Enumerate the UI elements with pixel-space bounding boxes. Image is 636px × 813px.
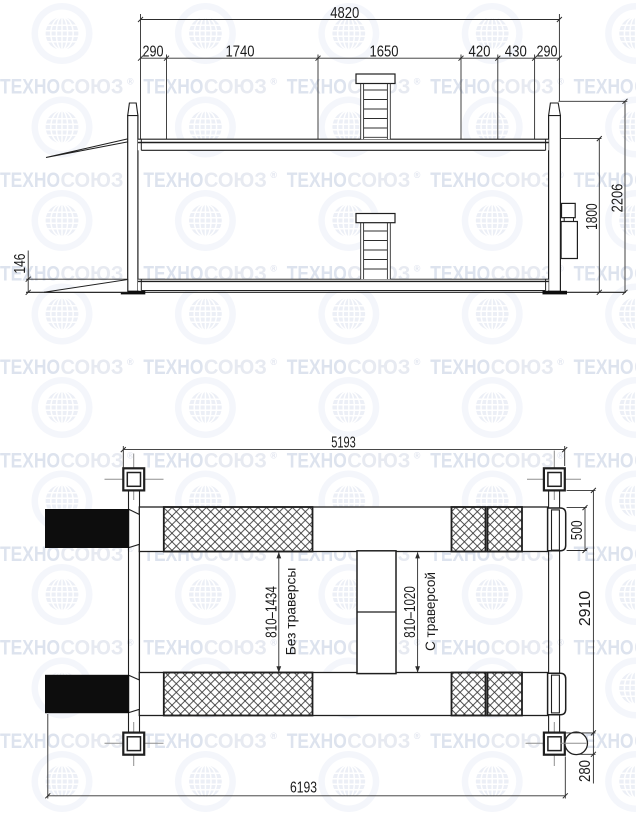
svg-text:280: 280 bbox=[577, 760, 594, 782]
svg-text:ТЕХНО: ТЕХНО bbox=[287, 169, 347, 192]
svg-text:ТЕХНО: ТЕХНО bbox=[0, 76, 60, 99]
svg-text:ТЕХНО: ТЕХНО bbox=[287, 450, 347, 473]
svg-text:®: ® bbox=[270, 170, 277, 180]
svg-text:Без траверсы: Без траверсы bbox=[282, 568, 298, 656]
svg-text:ТЕХНО: ТЕХНО bbox=[143, 730, 203, 753]
svg-text:ТЕХНО: ТЕХНО bbox=[430, 730, 490, 753]
svg-text:ТЕХНО: ТЕХНО bbox=[0, 169, 60, 192]
svg-text:2910: 2910 bbox=[577, 590, 594, 626]
svg-text:СОЮЗ: СОЮЗ bbox=[347, 356, 410, 379]
svg-text:ТЕХНО: ТЕХНО bbox=[430, 76, 490, 99]
svg-text:®: ® bbox=[127, 357, 134, 367]
svg-text:ТЕХНО: ТЕХНО bbox=[143, 76, 203, 99]
svg-text:4820: 4820 bbox=[330, 5, 359, 22]
svg-text:®: ® bbox=[270, 638, 277, 648]
svg-text:СОЮЗ: СОЮЗ bbox=[347, 450, 410, 473]
svg-text:ТЕХНО: ТЕХНО bbox=[430, 637, 490, 660]
svg-text:420: 420 bbox=[469, 44, 491, 61]
svg-text:ТЕХНО: ТЕХНО bbox=[0, 450, 60, 473]
svg-text:ТЕХНО: ТЕХНО bbox=[430, 450, 490, 473]
svg-text:ТЕХНО: ТЕХНО bbox=[430, 356, 490, 379]
svg-text:®: ® bbox=[557, 638, 564, 648]
svg-text:®: ® bbox=[414, 357, 421, 367]
svg-text:ТЕХНО: ТЕХНО bbox=[0, 730, 60, 753]
svg-text:ТЕХНО: ТЕХНО bbox=[574, 450, 634, 473]
svg-text:6193: 6193 bbox=[290, 780, 317, 797]
svg-text:1800: 1800 bbox=[584, 203, 601, 230]
svg-text:®: ® bbox=[557, 77, 564, 87]
svg-text:290: 290 bbox=[143, 44, 164, 61]
svg-text:®: ® bbox=[414, 77, 421, 87]
svg-text:СОЮЗ: СОЮЗ bbox=[204, 169, 267, 192]
svg-text:810–1020: 810–1020 bbox=[402, 586, 419, 638]
svg-text:СОЮЗ: СОЮЗ bbox=[61, 730, 124, 753]
svg-text:®: ® bbox=[127, 77, 134, 87]
svg-text:®: ® bbox=[270, 451, 277, 461]
svg-text:1650: 1650 bbox=[370, 44, 399, 61]
svg-text:810–1434: 810–1434 bbox=[263, 586, 280, 638]
svg-text:СОЮЗ: СОЮЗ bbox=[61, 637, 124, 660]
svg-text:290: 290 bbox=[537, 44, 558, 61]
svg-text:СОЮЗ: СОЮЗ bbox=[204, 76, 267, 99]
svg-text:®: ® bbox=[414, 264, 421, 274]
svg-text:ТЕХНО: ТЕХНО bbox=[0, 637, 60, 660]
svg-text:®: ® bbox=[414, 170, 421, 180]
svg-text:®: ® bbox=[414, 731, 421, 741]
svg-text:500: 500 bbox=[569, 520, 586, 540]
svg-text:ТЕХНО: ТЕХНО bbox=[143, 356, 203, 379]
svg-text:®: ® bbox=[270, 357, 277, 367]
svg-text:®: ® bbox=[127, 451, 134, 461]
svg-text:ТЕХНО: ТЕХНО bbox=[287, 730, 347, 753]
svg-text:ТЕХНО: ТЕХНО bbox=[143, 169, 203, 192]
svg-text:СОЮЗ: СОЮЗ bbox=[61, 169, 124, 192]
svg-text:®: ® bbox=[414, 451, 421, 461]
svg-text:®: ® bbox=[270, 264, 277, 274]
svg-text:СОЮЗ: СОЮЗ bbox=[204, 730, 267, 753]
svg-text:ТЕХНО: ТЕХНО bbox=[143, 450, 203, 473]
svg-text:®: ® bbox=[557, 451, 564, 461]
svg-text:ТЕХНО: ТЕХНО bbox=[143, 637, 203, 660]
svg-text:®: ® bbox=[270, 731, 277, 741]
svg-text:СОЮЗ: СОЮЗ bbox=[347, 730, 410, 753]
svg-text:СОЮЗ: СОЮЗ bbox=[204, 637, 267, 660]
svg-text:СОЮЗ: СОЮЗ bbox=[491, 637, 554, 660]
svg-text:®: ® bbox=[557, 357, 564, 367]
svg-text:СОЮЗ: СОЮЗ bbox=[491, 76, 554, 99]
svg-text:ТЕХНО: ТЕХНО bbox=[574, 543, 634, 566]
svg-text:ТЕХНО: ТЕХНО bbox=[574, 76, 634, 99]
svg-text:СОЮЗ: СОЮЗ bbox=[61, 356, 124, 379]
svg-text:ТЕХНО: ТЕХНО bbox=[0, 263, 60, 286]
svg-text:430: 430 bbox=[505, 44, 527, 61]
svg-text:ТЕХНО: ТЕХНО bbox=[574, 356, 634, 379]
svg-text:ТЕХНО: ТЕХНО bbox=[287, 356, 347, 379]
svg-text:СОЮЗ: СОЮЗ bbox=[61, 450, 124, 473]
svg-text:СОЮЗ: СОЮЗ bbox=[61, 76, 124, 99]
svg-text:2206: 2206 bbox=[609, 184, 626, 213]
svg-text:ТЕХНО: ТЕХНО bbox=[574, 637, 634, 660]
svg-text:ТЕХНО: ТЕХНО bbox=[287, 76, 347, 99]
svg-text:5193: 5193 bbox=[331, 435, 356, 452]
svg-text:®: ® bbox=[270, 77, 277, 87]
svg-text:СОЮЗ: СОЮЗ bbox=[204, 356, 267, 379]
svg-text:СОЮЗ: СОЮЗ bbox=[204, 450, 267, 473]
svg-text:СОЮЗ: СОЮЗ bbox=[491, 169, 554, 192]
svg-text:146: 146 bbox=[12, 254, 29, 274]
svg-text:СОЮЗ: СОЮЗ bbox=[491, 356, 554, 379]
svg-text:ТЕХНО: ТЕХНО bbox=[0, 356, 60, 379]
svg-text:ТЕХНО: ТЕХНО bbox=[430, 169, 490, 192]
svg-text:СОЮЗ: СОЮЗ bbox=[347, 169, 410, 192]
svg-text:С траверсой: С траверсой bbox=[422, 572, 438, 651]
svg-text:1740: 1740 bbox=[226, 44, 255, 61]
